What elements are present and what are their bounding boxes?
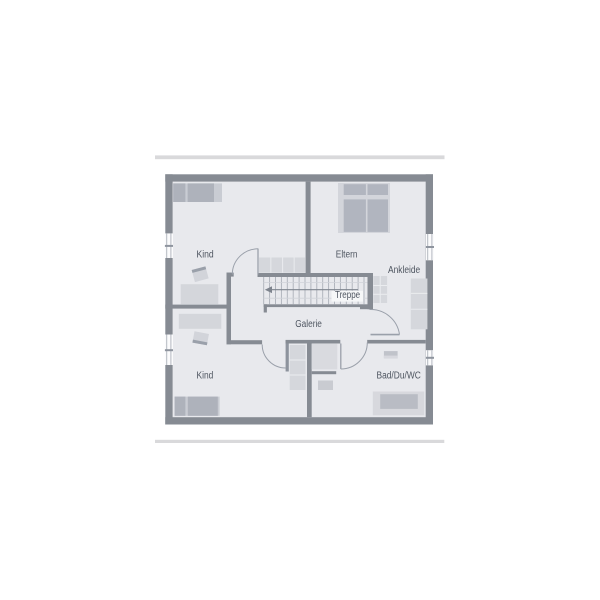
svg-text:Bad/Du/WC: Bad/Du/WC [377, 370, 421, 382]
svg-text:Galerie: Galerie [295, 318, 322, 330]
svg-text:Treppe: Treppe [335, 289, 360, 300]
svg-text:Eltern: Eltern [336, 248, 358, 260]
svg-text:Ankleide: Ankleide [388, 264, 420, 276]
svg-text:Kind: Kind [197, 249, 214, 261]
svg-text:Kind: Kind [197, 370, 214, 382]
